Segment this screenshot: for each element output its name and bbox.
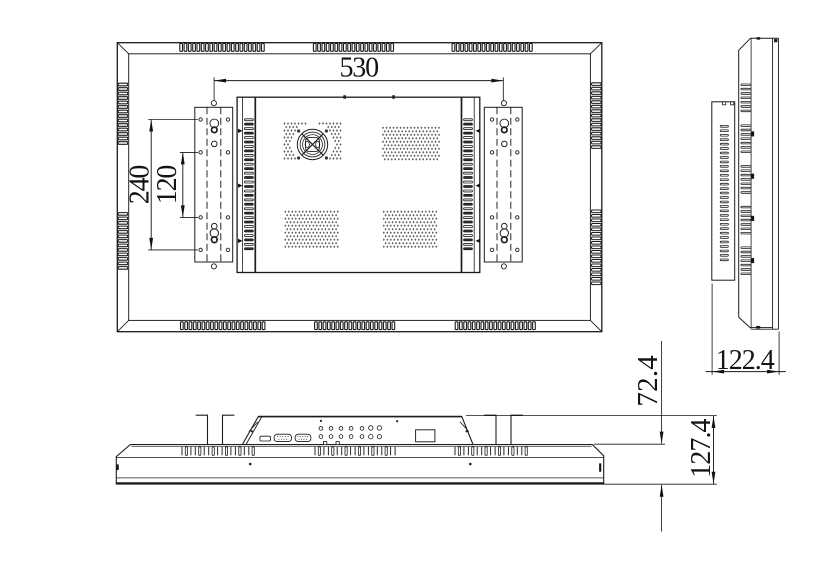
svg-text:72.4: 72.4 <box>632 355 664 407</box>
svg-text:122.4: 122.4 <box>716 345 775 376</box>
svg-text:127.4: 127.4 <box>686 418 717 477</box>
svg-text:120: 120 <box>152 166 183 205</box>
svg-text:530: 530 <box>339 53 378 84</box>
